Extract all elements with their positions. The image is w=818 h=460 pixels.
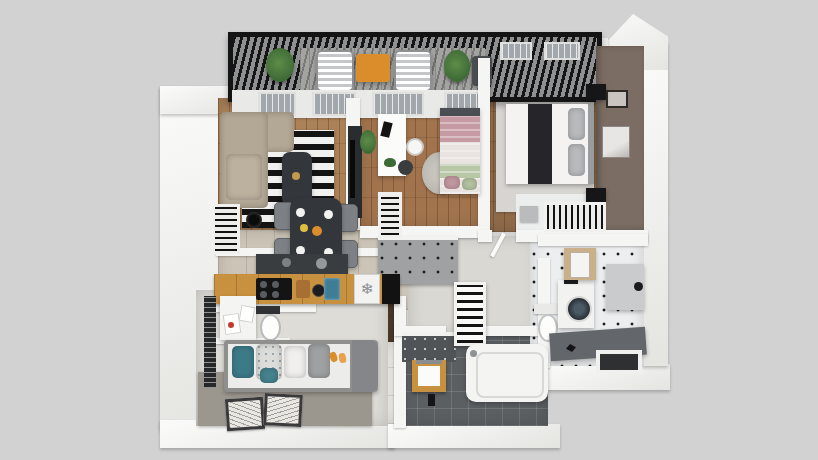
bathtub-faucet [470, 350, 477, 357]
master-wall-art-small [606, 90, 628, 108]
dining-bowl-yellow [300, 224, 308, 232]
floor-lamp [246, 212, 262, 228]
study-bed-headboard [440, 108, 480, 116]
study-striped-wardrobe [378, 192, 402, 238]
wall-bathroom-right-top [538, 234, 648, 246]
cooktop-burner-3 [260, 291, 267, 298]
water-boiler-panel [570, 252, 590, 278]
kids-pillow-white [284, 346, 306, 378]
wc-toilet-bowl [260, 314, 281, 341]
master-wall-art-large [602, 126, 630, 158]
bathroom-dark-tile-wall [402, 332, 456, 362]
kids-pillow-gray [308, 344, 330, 378]
study-desk-chair [398, 160, 413, 175]
kids-picture-frame-2 [263, 393, 303, 427]
study-plant [360, 130, 376, 154]
master-closet-drawer [520, 206, 538, 222]
balcony-outdoor-table [356, 54, 390, 82]
master-window-2 [544, 42, 580, 60]
vanity-mirror [416, 360, 442, 364]
kids-picture-frame-1 [225, 397, 265, 432]
study-balcony-door [372, 92, 424, 116]
wc-toilet-tank [256, 306, 280, 314]
study-pillow-mint [462, 178, 477, 190]
master-wardrobe [544, 202, 606, 232]
balcony-lounge-chair-1 [316, 50, 354, 92]
outer-wall-bottom-mid [388, 424, 560, 448]
bathroom-floor-item [428, 394, 435, 406]
wc-window-blinds [204, 296, 216, 388]
outer-wall-right [642, 42, 668, 366]
cooktop-burner-4 [272, 291, 279, 298]
wall-under-master-left [478, 230, 492, 242]
bathroom-right-toilet-tank [534, 304, 558, 314]
cooktop-burner-2 [272, 281, 279, 288]
kitchen-fridge-top: ❄ [354, 274, 380, 304]
fridge-snowflake-icon: ❄ [361, 280, 374, 298]
wall-hall-bathroom [394, 296, 406, 428]
master-headboard [588, 104, 594, 184]
study-round-table [406, 138, 424, 156]
vanity-sink [418, 366, 440, 386]
wc-paper-red-mark [228, 322, 234, 328]
floor-plan-render: ❄ [0, 0, 818, 460]
balcony-lounge-chair-2 [394, 50, 432, 92]
master-window-1 [500, 42, 532, 60]
mirror-cabinet-handle [634, 282, 643, 291]
master-pillow-2 [568, 144, 585, 176]
master-bed-throw [528, 104, 552, 184]
kitchen-oven-top [382, 274, 400, 304]
dining-bowl-orange [312, 226, 322, 236]
master-nightstand-top [586, 84, 606, 100]
towel-ladder [454, 282, 486, 346]
tv-screen [350, 140, 355, 198]
sofa-seat-cushion [226, 154, 262, 200]
kitchen-upper-cabinets [256, 254, 348, 276]
kids-bed-armrest [352, 340, 378, 392]
kitchen-kettle [316, 258, 327, 269]
kitchen-blue-tray [324, 278, 340, 300]
kids-pillow-teal-1 [232, 346, 254, 378]
study-desk-plant [384, 158, 396, 167]
cooktop-burner-1 [260, 281, 267, 288]
wc-paper-sheet-2 [239, 305, 256, 323]
master-pillow-1 [568, 108, 585, 140]
study-pillow-pink [444, 176, 460, 189]
balcony-plant-left [266, 48, 294, 82]
washing-machine-drum [566, 296, 592, 322]
dining-plate-2 [324, 210, 333, 219]
kitchen-cutting-board [296, 280, 310, 298]
bathtub-basin [476, 352, 544, 398]
kids-pillow-teal-2 [260, 368, 278, 383]
balcony-plant-right [444, 50, 470, 82]
kitchen-pot [282, 258, 291, 267]
coffee-table-decor [292, 172, 300, 180]
wall-niche [596, 350, 642, 374]
living-radiator-shelf [212, 204, 240, 254]
dining-plate-1 [296, 208, 305, 217]
master-nightstand-bottom [586, 188, 606, 202]
